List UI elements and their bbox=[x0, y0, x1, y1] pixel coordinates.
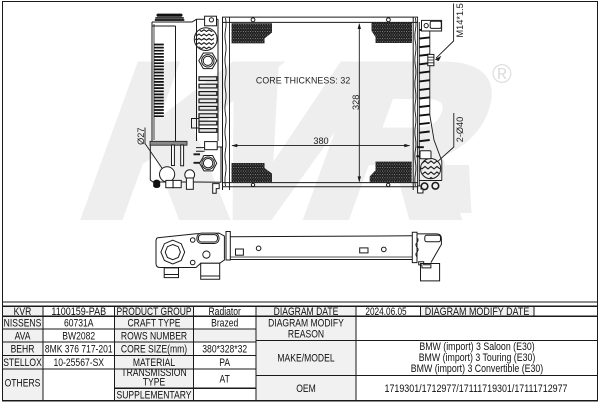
svg-text:380*328*32: 380*328*32 bbox=[202, 344, 247, 356]
svg-text:MAKE/MODEL: MAKE/MODEL bbox=[277, 353, 335, 365]
svg-text:CORE SIZE(mm): CORE SIZE(mm) bbox=[121, 344, 187, 356]
svg-text:AT: AT bbox=[220, 373, 230, 385]
svg-text:380: 380 bbox=[313, 136, 328, 146]
svg-text:8MK 376 717-201: 8MK 376 717-201 bbox=[45, 344, 113, 356]
svg-text:60731A: 60731A bbox=[64, 318, 94, 330]
svg-text:REASON: REASON bbox=[288, 328, 324, 340]
svg-text:1100159-PAB: 1100159-PAB bbox=[51, 306, 106, 318]
svg-text:®: ® bbox=[492, 59, 512, 89]
svg-text:M14*1.5: M14*1.5 bbox=[455, 3, 465, 37]
svg-text:AVA: AVA bbox=[15, 330, 31, 342]
svg-text:NISSENS: NISSENS bbox=[4, 318, 42, 330]
svg-text:CRAFT TYPE: CRAFT TYPE bbox=[127, 318, 180, 330]
svg-text:BEHR: BEHR bbox=[11, 344, 35, 356]
svg-text:Ø27: Ø27 bbox=[136, 128, 146, 145]
svg-text:TYPE: TYPE bbox=[143, 377, 166, 389]
svg-text:BMW (import) 3 Convertible (E3: BMW (import) 3 Convertible (E30) bbox=[411, 363, 543, 375]
svg-text:Brazed: Brazed bbox=[211, 318, 238, 330]
svg-text:328: 328 bbox=[351, 95, 361, 110]
svg-text:OTHERS: OTHERS bbox=[5, 378, 41, 390]
svg-text:ROWS NUMBER: ROWS NUMBER bbox=[121, 330, 187, 342]
svg-text:2-Ø40: 2-Ø40 bbox=[455, 117, 465, 143]
svg-text:CORE THICKNESS: 32: CORE THICKNESS: 32 bbox=[256, 76, 351, 86]
svg-text:10-25567-SX: 10-25567-SX bbox=[53, 357, 104, 369]
svg-text:PA: PA bbox=[219, 357, 230, 369]
svg-text:DIAGRAM MODIFY DATE: DIAGRAM MODIFY DATE bbox=[425, 306, 530, 318]
svg-text:BW2082: BW2082 bbox=[62, 330, 95, 342]
svg-text:OEM: OEM bbox=[296, 383, 316, 395]
svg-text:1719301/1712977/17111719301/17: 1719301/1712977/17111719301/17111712977 bbox=[384, 383, 567, 395]
svg-text:STELLOX: STELLOX bbox=[3, 357, 42, 369]
svg-text:2024.06.05: 2024.06.05 bbox=[365, 306, 406, 318]
svg-text:SUPPLEMENTARY: SUPPLEMENTARY bbox=[117, 389, 192, 401]
